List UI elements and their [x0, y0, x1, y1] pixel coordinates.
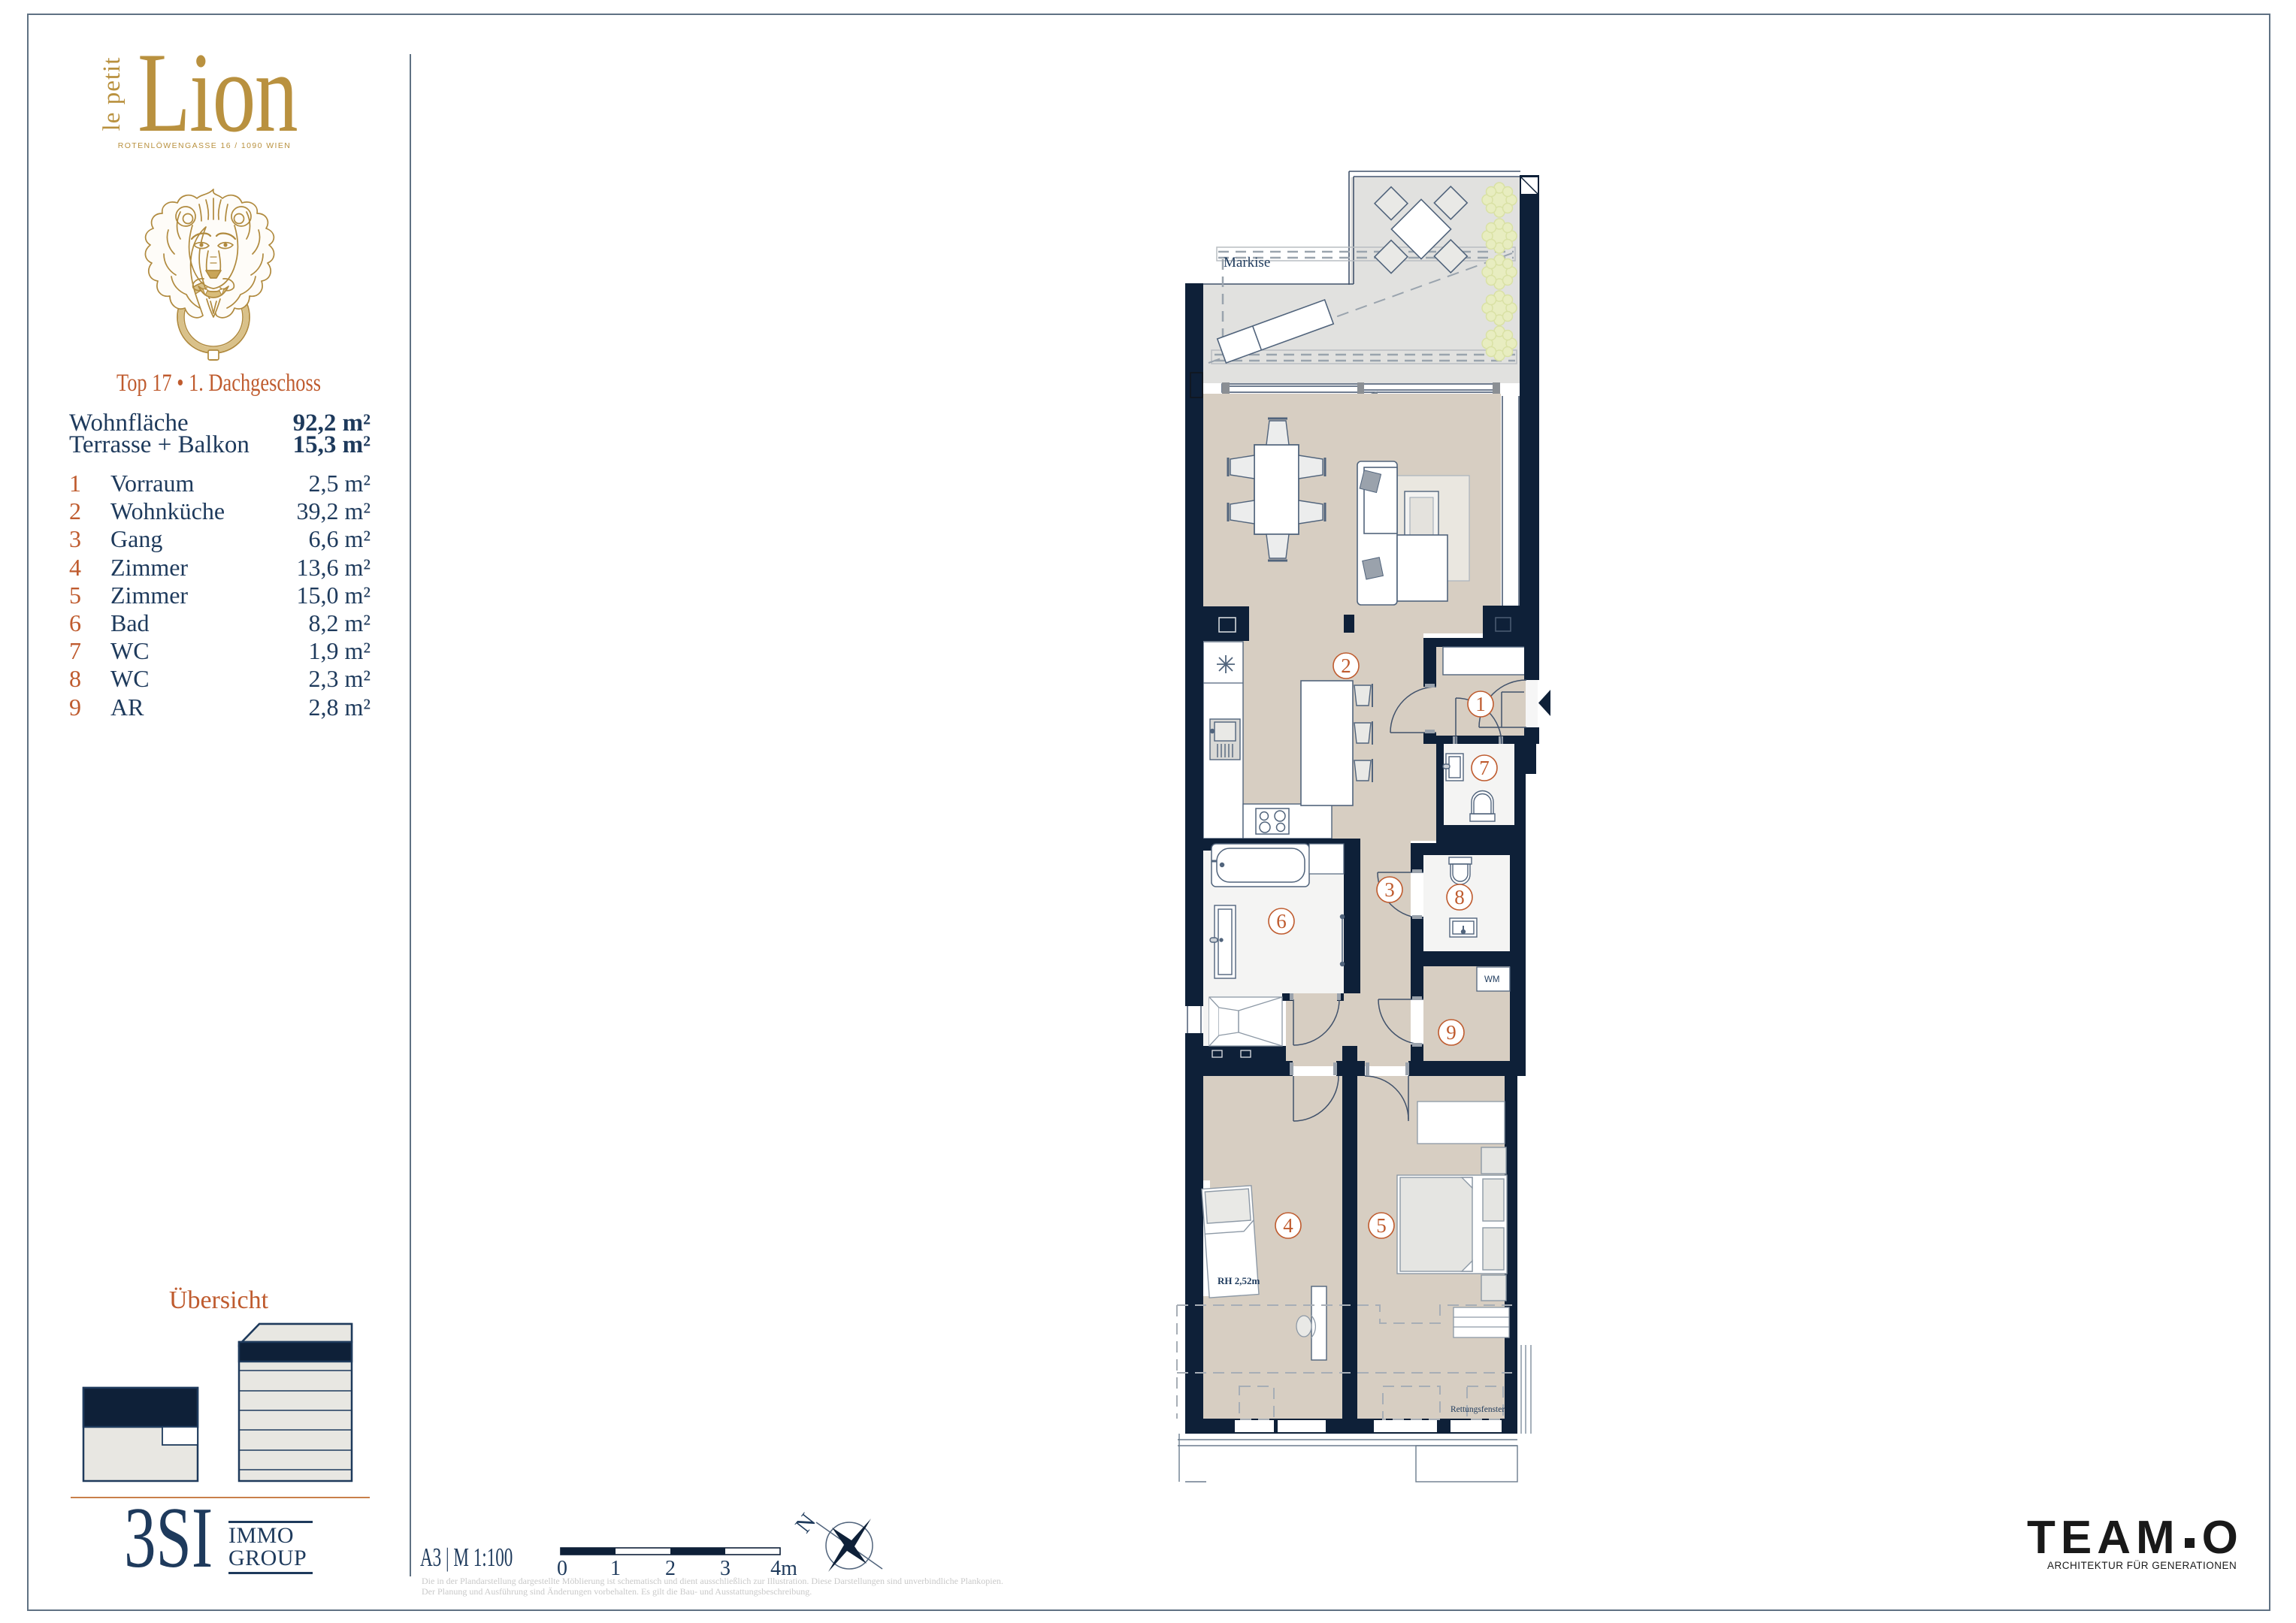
svg-text:2: 2	[1341, 654, 1351, 677]
svg-text:4: 4	[1283, 1214, 1293, 1237]
svg-text:7: 7	[1479, 757, 1490, 779]
svg-text:RH 2,52m: RH 2,52m	[1218, 1275, 1260, 1286]
svg-text:9: 9	[1446, 1021, 1457, 1044]
svg-text:WM: WM	[1484, 975, 1499, 984]
svg-text:Markise: Markise	[1224, 255, 1270, 270]
svg-text:5: 5	[1376, 1214, 1387, 1237]
svg-text:3: 3	[1384, 878, 1395, 901]
svg-text:8: 8	[1454, 886, 1465, 908]
svg-text:6: 6	[1276, 910, 1287, 932]
svg-text:Rettungsfenster: Rettungsfenster	[1451, 1405, 1505, 1414]
svg-text:1: 1	[1475, 693, 1486, 715]
svg-text:N: N	[790, 1508, 821, 1537]
